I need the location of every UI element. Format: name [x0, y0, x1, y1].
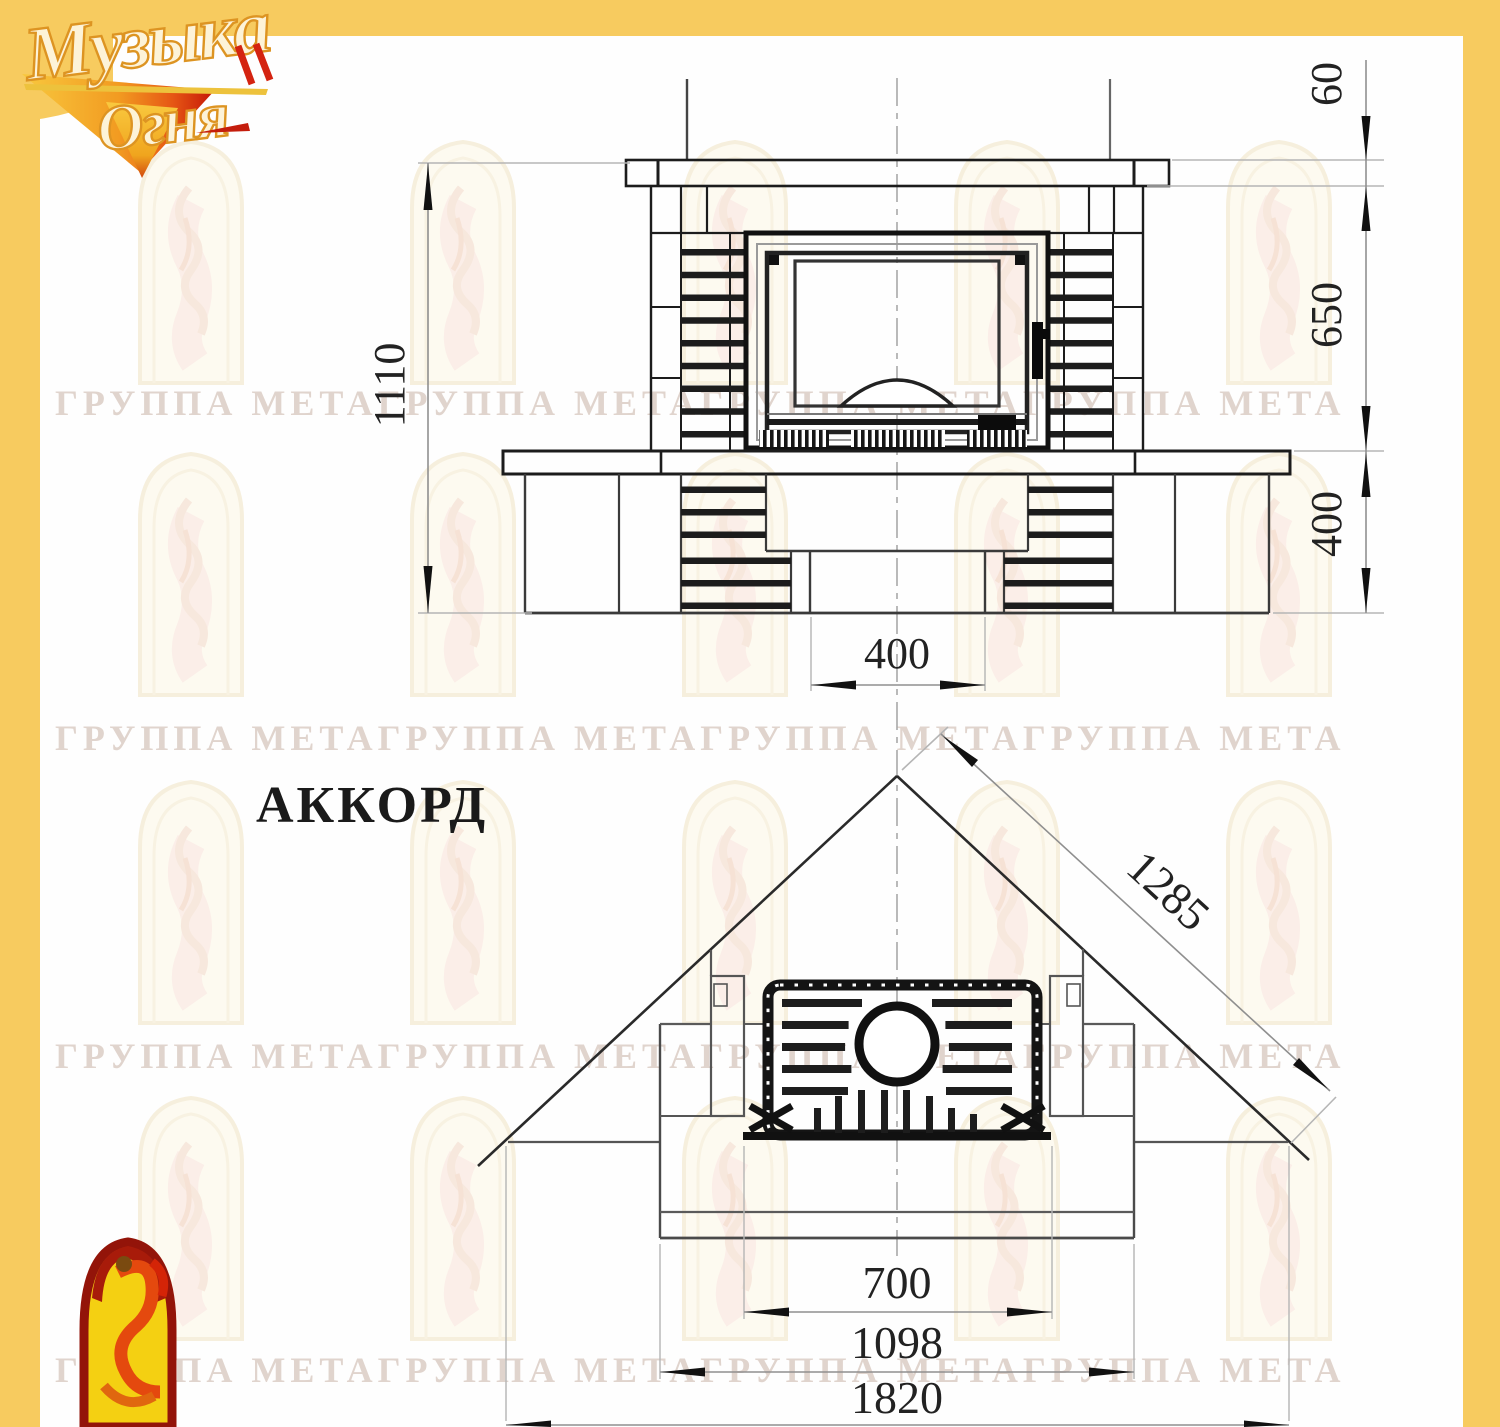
svg-text:700: 700 — [863, 1257, 932, 1308]
svg-text:ГРУППА МЕТАГРУППА МЕТАГРУППА М: ГРУППА МЕТАГРУППА МЕТАГРУППА МЕТАГРУППА … — [55, 1036, 1346, 1076]
svg-text:1820: 1820 — [851, 1372, 943, 1423]
svg-text:1098: 1098 — [851, 1317, 943, 1368]
svg-text:650: 650 — [1302, 282, 1351, 348]
svg-text:400: 400 — [1302, 491, 1351, 557]
svg-text:АККОРД: АККОРД — [256, 777, 488, 834]
svg-text:1110: 1110 — [365, 343, 414, 428]
svg-text:ГРУППА МЕТАГРУППА МЕТАГРУППА М: ГРУППА МЕТАГРУППА МЕТАГРУППА МЕТАГРУППА … — [55, 718, 1346, 758]
svg-text:60: 60 — [1302, 62, 1351, 106]
svg-text:400: 400 — [864, 629, 930, 678]
